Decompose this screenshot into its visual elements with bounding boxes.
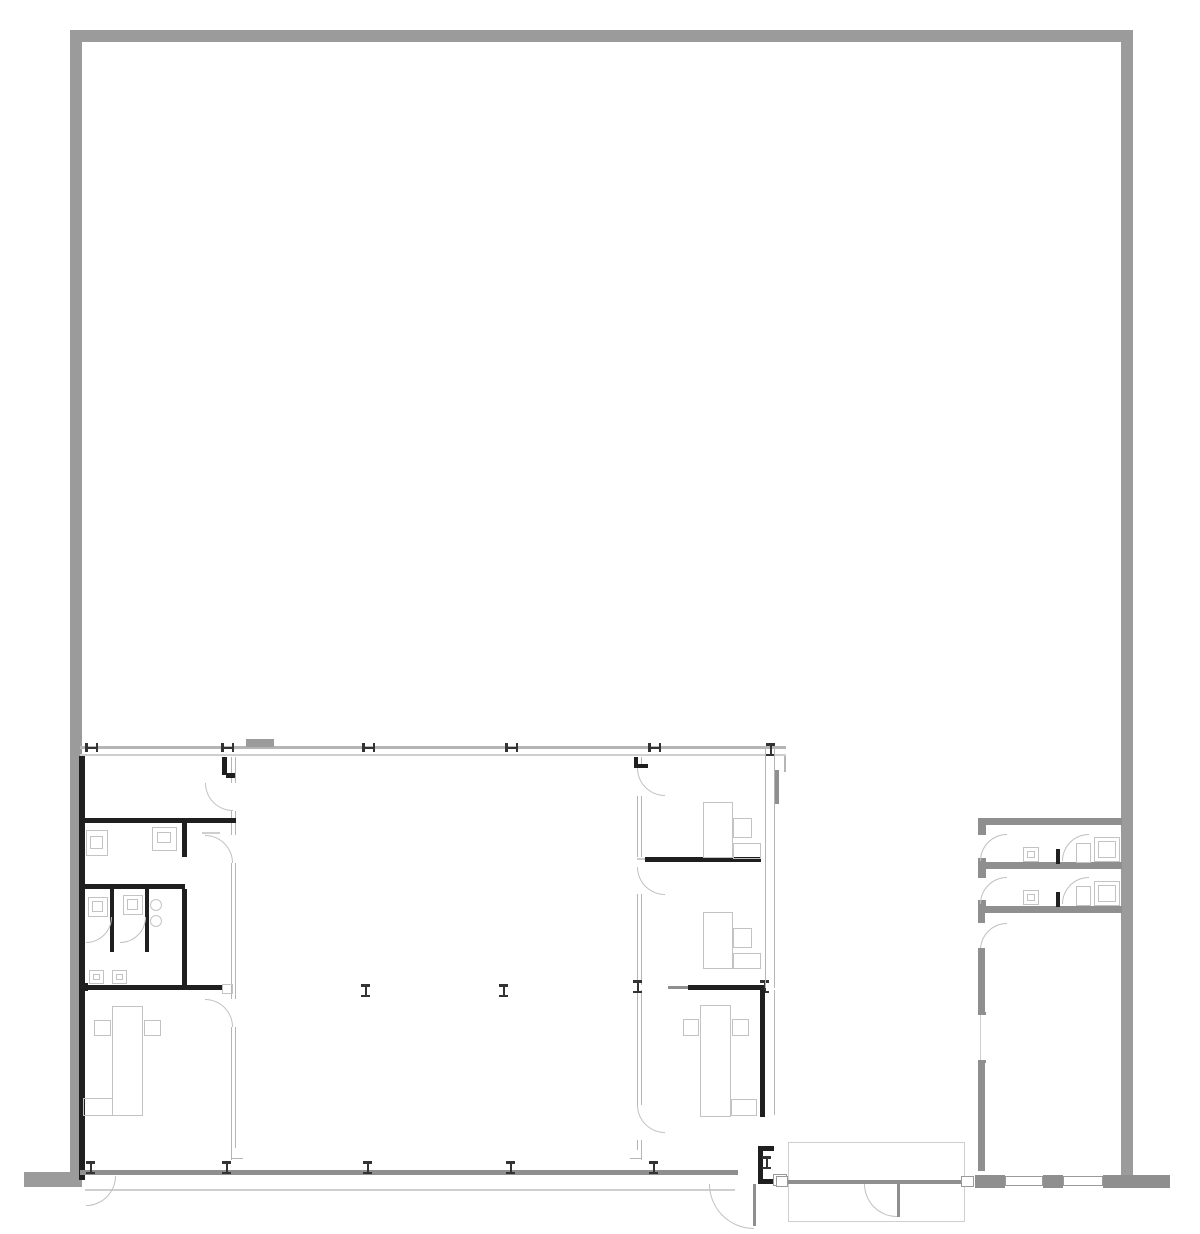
annex-room-door-arc [980, 923, 1007, 950]
main-bottom-wall [80, 1170, 738, 1175]
annex-bottom-wall [1043, 1175, 1063, 1188]
office1-door-jamb [226, 773, 235, 778]
annex-left-wall [978, 948, 985, 1015]
column-marker [762, 1156, 771, 1169]
wc-wall-horizontal [79, 985, 222, 990]
column-marker [648, 743, 661, 752]
hall-wall-right [637, 894, 638, 985]
exit-frame [758, 1179, 774, 1184]
canopy-door-leaf [897, 1184, 900, 1217]
annex-window-line [980, 1015, 981, 1063]
annex-wall-stub [978, 869, 986, 878]
annex-top-wall [978, 818, 1122, 825]
annex-window-sill [1005, 1176, 1043, 1186]
threshold [776, 1176, 788, 1187]
sink-basin [150, 899, 162, 911]
column-marker [505, 743, 518, 752]
toilet-seat [90, 836, 103, 849]
office5-chair [683, 1019, 699, 1036]
hall-wall-right [641, 796, 642, 857]
office4-chair [733, 928, 752, 948]
restroom-door-arc [980, 877, 1007, 904]
office4-door-arc [637, 867, 665, 895]
toilet-seat [1027, 851, 1035, 858]
urinal-bowl [116, 974, 123, 980]
hall-wall-left [235, 863, 236, 999]
door-stop [222, 984, 233, 994]
hall-wall-left [231, 1027, 232, 1148]
wc-wall-horizontal [79, 884, 185, 889]
office3-door-arc [637, 768, 665, 796]
outer-wall-left-foot [24, 1172, 82, 1187]
column-marker [86, 1161, 95, 1174]
annex-bottom-wall [975, 1175, 1005, 1188]
hall-wall-right [637, 990, 638, 1105]
annex-bottom-wall [1103, 1175, 1170, 1188]
exit-door-arc [709, 1184, 754, 1229]
column-marker [506, 1161, 515, 1174]
annex-divider-wall [978, 906, 1122, 913]
office3-desk [703, 802, 733, 858]
sink [1076, 886, 1091, 906]
exit-door-arc [86, 1176, 116, 1206]
hall-column-marker [499, 984, 508, 997]
wc-stall-door-arc [120, 917, 146, 943]
office2-desk-return [83, 1098, 113, 1116]
hall-wall-left [235, 757, 236, 783]
toilet-seat [1027, 894, 1035, 901]
annex-left-wall [978, 1063, 985, 1171]
hall-wall-right [641, 894, 642, 985]
east-wall-line [774, 990, 775, 1115]
annex-window-sill [1063, 1176, 1103, 1186]
office2-desk [112, 1006, 143, 1116]
annex-room-wall-stub [978, 913, 985, 923]
toilet-seat [1098, 841, 1116, 858]
hall-wall-left [235, 1027, 236, 1148]
sink-basin [150, 915, 162, 927]
office5-desk-return [731, 1099, 757, 1116]
outer-wall-right [1121, 30, 1133, 1177]
restroom-partition [1056, 849, 1060, 864]
office5-chair [732, 1019, 749, 1036]
wc-stall-door-arc [86, 917, 112, 943]
toilet-seat [1098, 885, 1116, 902]
window-wall-bump [246, 739, 274, 747]
door-hinge-block [80, 983, 88, 991]
hall-wall-left [231, 757, 232, 783]
column-marker [85, 743, 98, 752]
hall-wall-left-jog [231, 1158, 243, 1159]
column-marker [649, 1161, 658, 1174]
corridor-door-arc [205, 835, 233, 863]
column-marker [221, 743, 234, 752]
east-wall-pier [775, 770, 779, 804]
office3-chair [733, 818, 752, 838]
hall-wall-left [231, 863, 232, 999]
office2-chair [94, 1020, 111, 1036]
office5-door-arc [637, 1105, 665, 1133]
threshold [961, 1176, 974, 1187]
column-marker [363, 1161, 372, 1174]
annex-divider-wall [978, 862, 1122, 869]
hall-column-marker [361, 984, 370, 997]
restroom-door-arc [980, 834, 1007, 861]
hall-wall-right-jog [630, 1158, 642, 1159]
office4-desk-return [733, 953, 761, 969]
hall-wall-right [641, 990, 642, 1105]
office2-chair [144, 1020, 161, 1036]
walkway-line [85, 1189, 735, 1191]
restroom-partition [1056, 892, 1060, 907]
toilet-seat [92, 901, 103, 912]
outer-wall-top [70, 30, 1132, 42]
floor-plan [0, 0, 1200, 1234]
window-wall-top-outer-line [80, 746, 786, 749]
corridor-door-stub [202, 832, 220, 834]
hall-wall-left [235, 811, 236, 835]
sink [1076, 843, 1091, 863]
office5-wall [760, 990, 765, 1117]
office2-door-arc [205, 999, 233, 1027]
exit-frame [758, 1146, 774, 1151]
hall-wall-right [637, 796, 638, 857]
column-marker [222, 1161, 231, 1174]
office-divider-stub [668, 986, 688, 989]
toilet-seat [157, 832, 171, 843]
hall-wall-left [231, 811, 232, 835]
wc-wall-horizontal [79, 818, 236, 823]
toilet-seat [127, 899, 138, 910]
column-marker [633, 980, 642, 993]
east-wall-line [765, 748, 766, 988]
wc-wall-vertical-lower [182, 889, 187, 985]
column-marker [362, 743, 375, 752]
wc-wall-vertical-upper [182, 818, 187, 857]
office-divider-stub [637, 858, 645, 860]
office1-door-arc [205, 783, 233, 811]
office5-desk [700, 1005, 731, 1117]
annex-wall-stub [978, 825, 986, 835]
office-divider-wall [688, 985, 765, 990]
window-wall-top-inner-line [80, 754, 786, 756]
urinal-bowl [93, 974, 100, 980]
hall-wall-right [637, 1140, 638, 1150]
office4-desk [703, 912, 733, 969]
office3-desk-return [733, 843, 761, 859]
window-wall-end-jog [784, 756, 786, 772]
